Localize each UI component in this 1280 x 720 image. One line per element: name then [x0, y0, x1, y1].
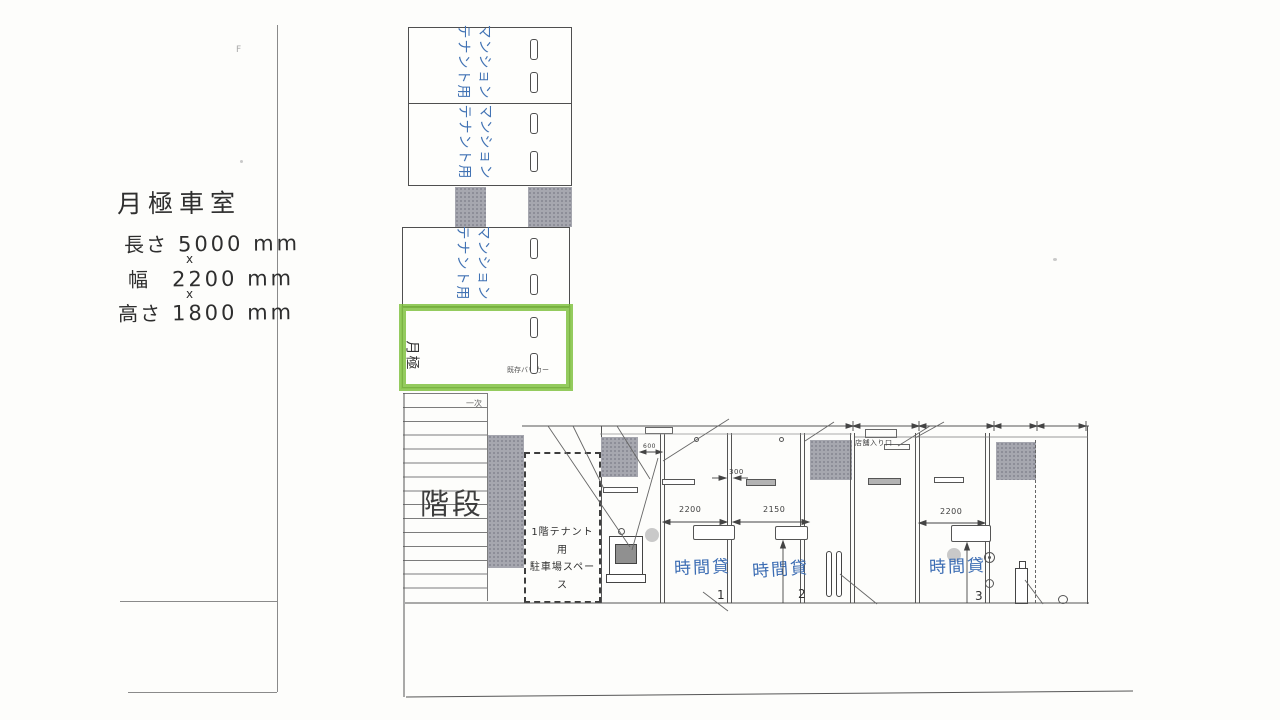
boundary-lines	[404, 393, 1133, 697]
dimension-lines	[640, 421, 1086, 603]
leader-lines	[548, 419, 1043, 611]
scanned-parking-plan: F 月極車室 長さ5000 mm x 幅2200 mm x 高さ1800 mm …	[0, 0, 1280, 720]
linework-overlay	[0, 0, 1280, 720]
